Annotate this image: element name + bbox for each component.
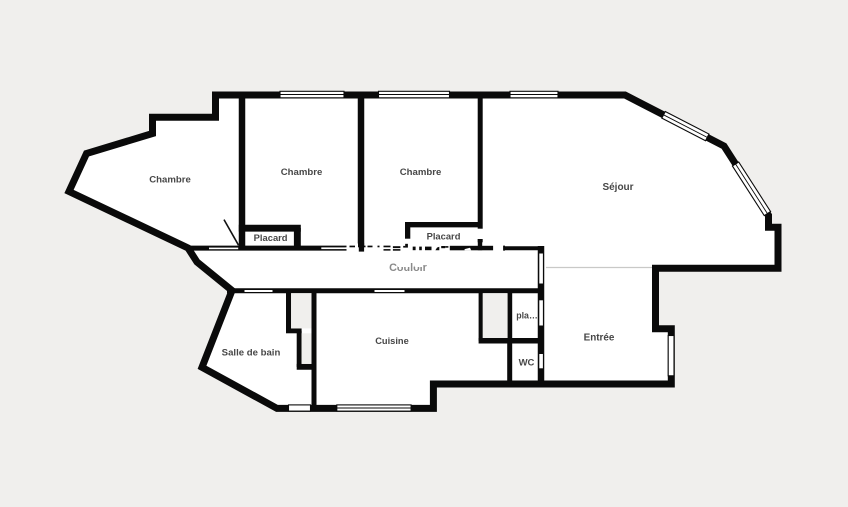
svg-text:Placard: Placard xyxy=(427,230,461,241)
svg-text:Chambre: Chambre xyxy=(149,175,191,186)
svg-text:Séjour: Séjour xyxy=(602,182,633,193)
svg-text:Salle de bain: Salle de bain xyxy=(222,348,281,359)
svg-text:Entrée: Entrée xyxy=(584,332,615,343)
svg-text:Placard: Placard xyxy=(254,232,288,243)
svg-text:Chambre: Chambre xyxy=(281,167,323,178)
svg-text:WC: WC xyxy=(519,358,535,369)
svg-text:Cuisine: Cuisine xyxy=(375,336,409,346)
svg-text:Chambre: Chambre xyxy=(400,167,442,178)
svg-text:pla…: pla… xyxy=(516,311,538,321)
